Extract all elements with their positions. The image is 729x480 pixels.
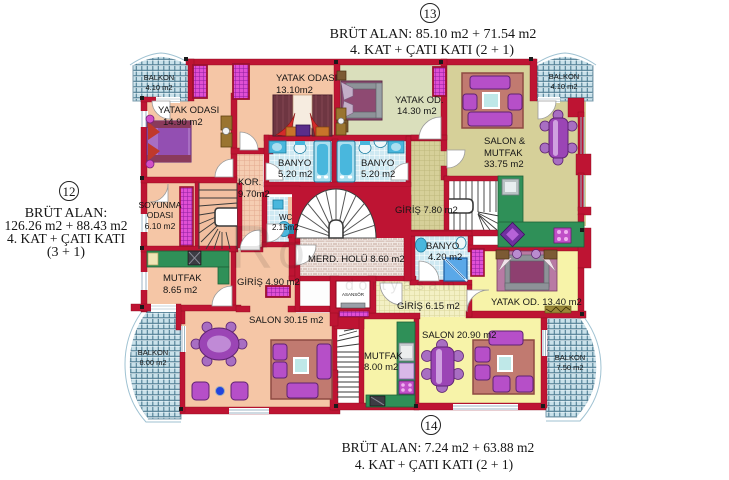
svg-text:8.00 m2: 8.00 m2 [139,358,166,367]
svg-text:8.00 m2: 8.00 m2 [364,362,398,373]
svg-text:4. KAT + ÇATI KATI (2 + 1): 4. KAT + ÇATI KATI (2 + 1) [355,457,513,472]
svg-text:SALON 20.90 m2: SALON 20.90 m2 [422,330,496,341]
svg-text:YATAK OD. 13.40 m2: YATAK OD. 13.40 m2 [491,297,582,308]
svg-text:MUTFAK: MUTFAK [484,148,523,159]
svg-text:14: 14 [425,418,439,433]
svg-text:13: 13 [424,6,437,21]
svg-text:SALON 30.15 m2: SALON 30.15 m2 [249,315,323,326]
svg-text:MUTFAK: MUTFAK [364,351,403,362]
svg-text:4.10 m2: 4.10 m2 [145,83,172,92]
svg-text:4.20 m2: 4.20 m2 [428,252,462,263]
svg-text:5.20 m2: 5.20 m2 [278,169,312,180]
svg-text:WC: WC [279,213,293,222]
svg-text:7.50 m2: 7.50 m2 [556,363,583,372]
svg-text:YATAK ODASI: YATAK ODASI [158,105,219,116]
svg-text:SOYUNMA: SOYUNMA [139,200,182,210]
svg-text:BRÜT ALAN: 85.10 m2 + 71.54 m2: BRÜT ALAN: 85.10 m2 + 71.54 m2 [330,25,537,42]
svg-text:BRÜT ALAN: 7.24 m2 + 63.88 m2: BRÜT ALAN: 7.24 m2 + 63.88 m2 [342,440,535,455]
svg-text:d o r t y a s a m: d o r t y a s a m [345,277,455,294]
svg-text:4. KAT + ÇATI KATI (2 + 1): 4. KAT + ÇATI KATI (2 + 1) [350,43,514,58]
svg-text:BANYO: BANYO [426,241,459,252]
svg-text:BALKON: BALKON [555,353,585,362]
svg-text:BALKON: BALKON [549,72,579,81]
svg-text:ODASI: ODASI [147,210,173,220]
svg-text:14.90 m2: 14.90 m2 [163,117,203,128]
svg-text:R: R [230,214,273,281]
svg-text:33.75 m2: 33.75 m2 [484,159,524,170]
svg-text:MERD. HOLÜ 8.60 m2: MERD. HOLÜ 8.60 m2 [308,254,405,265]
svg-text:(3 + 1): (3 + 1) [47,245,86,260]
svg-text:GİRİŞ 6.15 m2: GİRİŞ 6.15 m2 [397,301,460,312]
svg-text:KOR.: KOR. [238,177,261,188]
svg-text:13.10m2: 13.10m2 [276,85,313,96]
svg-text:4. KAT + ÇATI KATI: 4. KAT + ÇATI KATI [7,231,125,246]
svg-text:4.10 m2: 4.10 m2 [550,82,577,91]
svg-text:SALON &: SALON & [484,136,526,147]
svg-text:BANYO: BANYO [361,158,394,169]
svg-text:14.30 m2: 14.30 m2 [397,106,437,117]
svg-text:BANYO: BANYO [278,158,311,169]
svg-text:MUTFAK: MUTFAK [163,273,202,284]
svg-text:GİRİŞ 7.80 m2: GİRİŞ 7.80 m2 [395,205,458,216]
svg-text:5.20 m2: 5.20 m2 [361,169,395,180]
svg-text:YATAK OD.: YATAK OD. [395,95,444,106]
svg-text:8.65 m2: 8.65 m2 [163,285,197,296]
svg-text:6.10 m2: 6.10 m2 [145,221,176,231]
svg-text:12: 12 [63,184,76,199]
svg-text:BALKON: BALKON [138,348,168,357]
svg-text:BALKON: BALKON [144,73,174,82]
svg-text:YATAK ODASI: YATAK ODASI [276,73,337,84]
svg-text:o: o [278,226,305,279]
svg-text:9.70m2: 9.70m2 [238,189,270,200]
